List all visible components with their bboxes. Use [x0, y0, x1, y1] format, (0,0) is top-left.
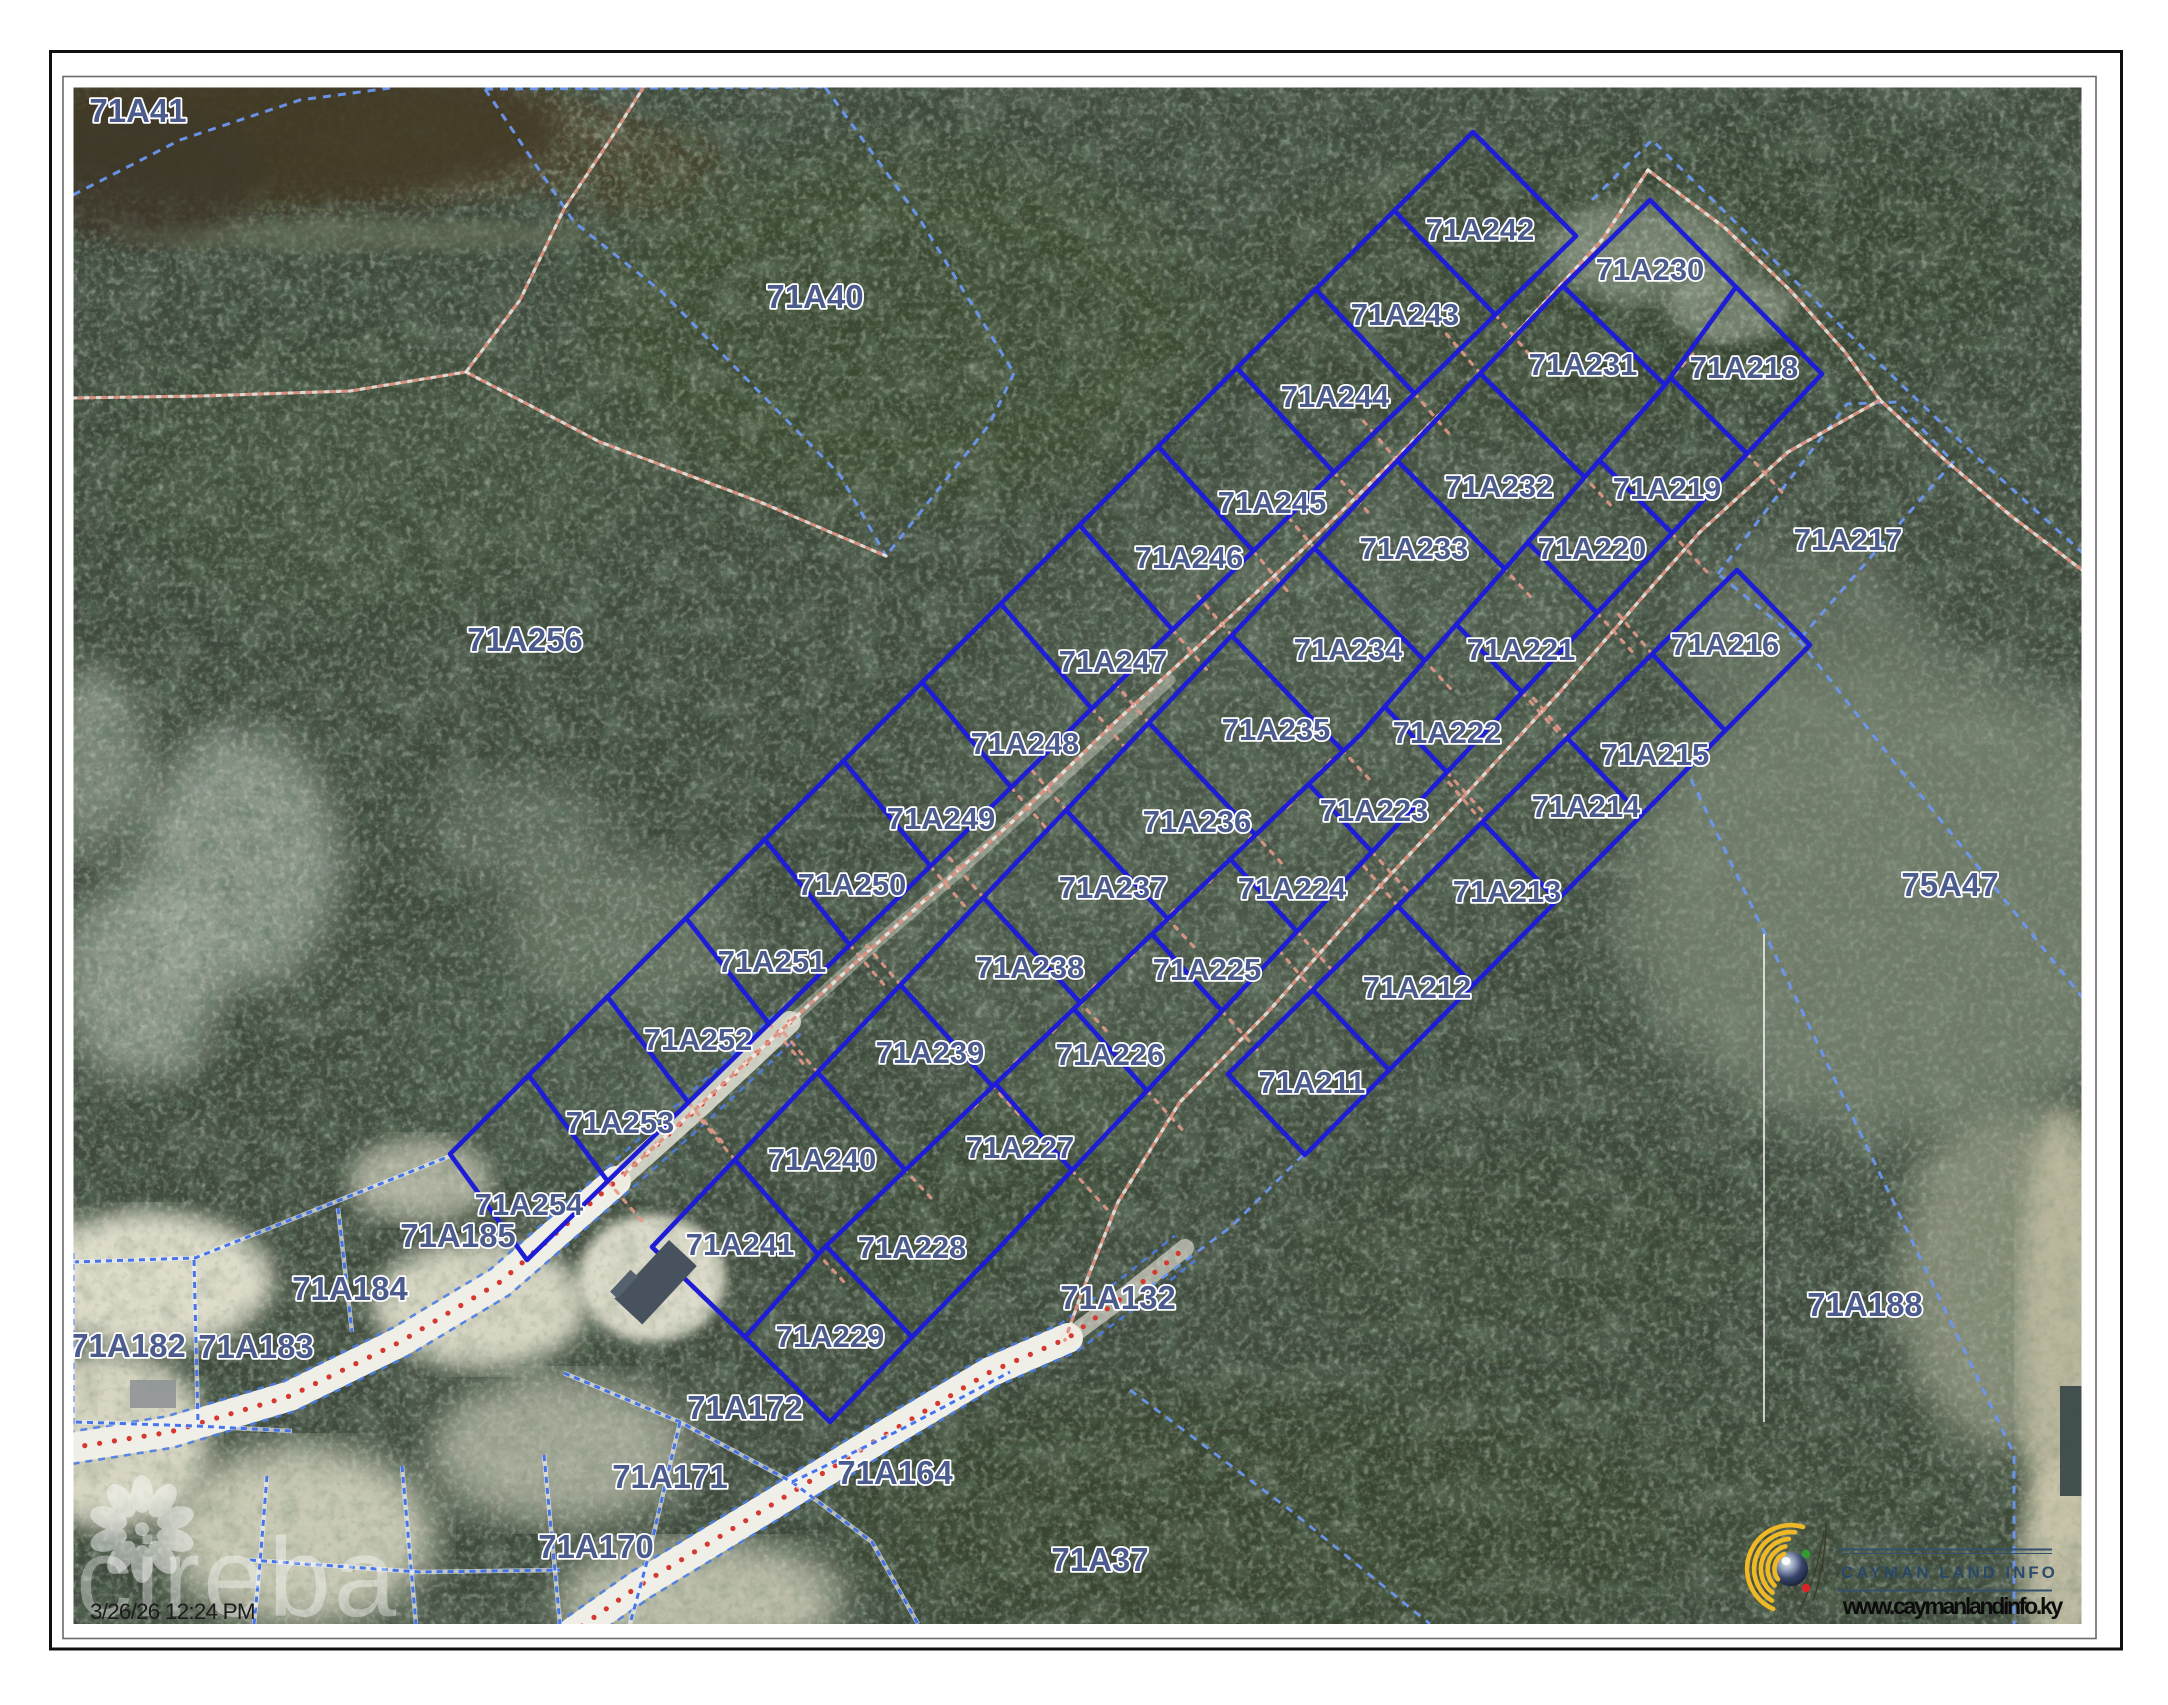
svg-text:71A40: 71A40	[766, 278, 863, 315]
svg-text:71A182: 71A182	[70, 1327, 186, 1364]
svg-text:71A243: 71A243	[1351, 297, 1460, 332]
svg-text:71A246: 71A246	[1135, 540, 1244, 575]
svg-text:71A228: 71A228	[858, 1230, 967, 1265]
svg-text:71A230: 71A230	[1596, 252, 1705, 287]
svg-text:71A185: 71A185	[400, 1217, 516, 1254]
svg-text:71A247: 71A247	[1059, 644, 1168, 679]
svg-text:71A164: 71A164	[837, 1454, 953, 1491]
svg-text:71A240: 71A240	[768, 1142, 877, 1177]
svg-text:71A172: 71A172	[687, 1389, 803, 1426]
svg-text:CAYMAN LAND INFO: CAYMAN LAND INFO	[1841, 1563, 2058, 1582]
svg-text:71A217: 71A217	[1794, 522, 1903, 557]
svg-text:71A41: 71A41	[89, 92, 186, 129]
svg-text:71A241: 71A241	[686, 1227, 795, 1262]
svg-text:71A216: 71A216	[1671, 627, 1780, 662]
svg-text:71A37: 71A37	[1051, 1541, 1148, 1578]
svg-text:71A223: 71A223	[1320, 793, 1429, 828]
svg-text:71A214: 71A214	[1532, 789, 1641, 824]
svg-text:71A212: 71A212	[1363, 970, 1472, 1005]
svg-text:71A238: 71A238	[976, 950, 1085, 985]
svg-text:71A218: 71A218	[1690, 350, 1799, 385]
svg-text:71A219: 71A219	[1613, 471, 1722, 506]
svg-text:71A211: 71A211	[1259, 1065, 1366, 1100]
svg-text:71A132: 71A132	[1060, 1279, 1176, 1316]
svg-text:71A171: 71A171	[612, 1458, 728, 1495]
svg-text:www.caymanlandinfo.ky: www.caymanlandinfo.ky	[1842, 1593, 2063, 1619]
svg-text:71A221: 71A221	[1467, 632, 1576, 667]
svg-text:3/26/26 12:24 PM: 3/26/26 12:24 PM	[90, 1599, 255, 1624]
svg-text:71A248: 71A248	[971, 726, 1080, 761]
svg-text:71A234: 71A234	[1294, 632, 1403, 667]
svg-text:71A215: 71A215	[1601, 737, 1710, 772]
svg-text:71A220: 71A220	[1538, 531, 1647, 566]
svg-text:71A231: 71A231	[1529, 347, 1638, 382]
svg-text:71A225: 71A225	[1153, 952, 1262, 987]
svg-text:71A235: 71A235	[1222, 712, 1331, 747]
svg-text:71A239: 71A239	[876, 1035, 985, 1070]
svg-text:71A232: 71A232	[1445, 469, 1554, 504]
svg-text:71A183: 71A183	[198, 1328, 314, 1365]
svg-text:71A242: 71A242	[1426, 212, 1535, 247]
svg-text:71A233: 71A233	[1360, 531, 1469, 566]
svg-text:71A250: 71A250	[798, 867, 907, 902]
svg-text:71A252: 71A252	[644, 1022, 753, 1057]
svg-text:71A236: 71A236	[1143, 804, 1252, 839]
svg-text:71A224: 71A224	[1238, 871, 1347, 906]
svg-text:71A249: 71A249	[887, 801, 996, 836]
svg-text:71A226: 71A226	[1056, 1037, 1165, 1072]
svg-text:71A244: 71A244	[1281, 379, 1390, 414]
svg-text:71A213: 71A213	[1453, 874, 1562, 909]
svg-text:71A170: 71A170	[538, 1528, 654, 1565]
svg-text:71A184: 71A184	[292, 1270, 408, 1307]
svg-text:71A256: 71A256	[467, 621, 583, 658]
svg-text:71A222: 71A222	[1393, 715, 1502, 750]
svg-text:71A251: 71A251	[718, 944, 827, 979]
svg-text:71A245: 71A245	[1218, 485, 1327, 520]
svg-text:75A47: 75A47	[1901, 866, 1998, 903]
svg-text:71A229: 71A229	[776, 1319, 885, 1354]
svg-text:71A188: 71A188	[1807, 1286, 1923, 1323]
svg-text:71A237: 71A237	[1059, 870, 1168, 905]
svg-text:71A227: 71A227	[966, 1130, 1075, 1165]
svg-text:71A253: 71A253	[566, 1105, 675, 1140]
